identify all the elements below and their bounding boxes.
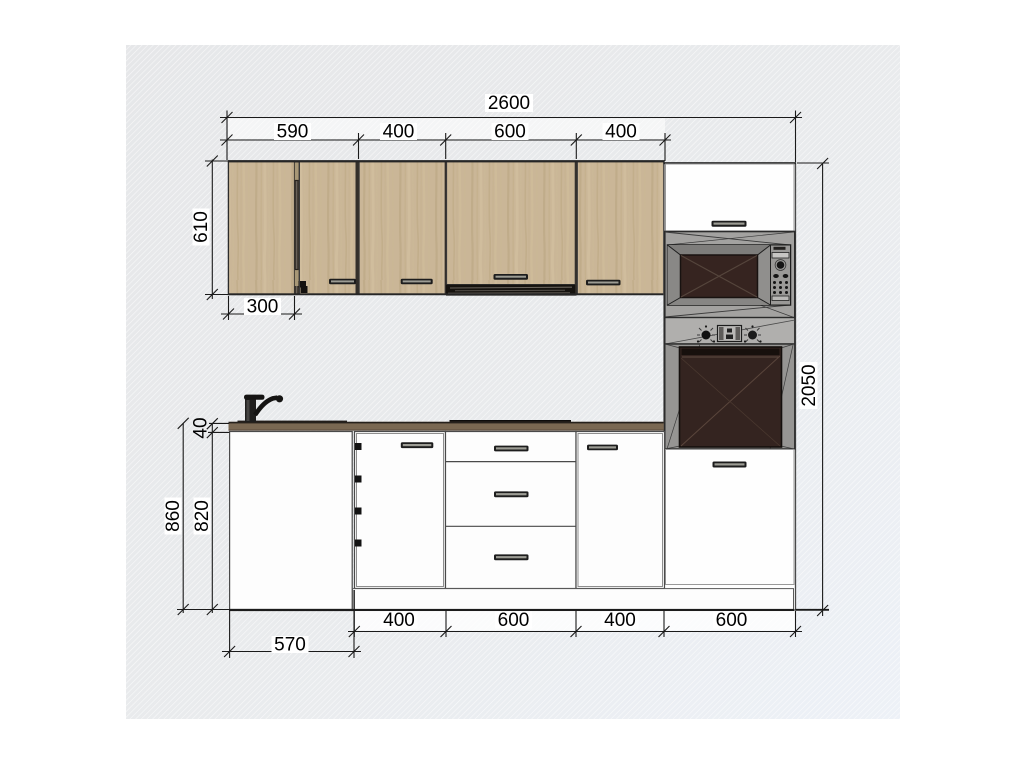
svg-text:600: 600 (498, 610, 530, 631)
svg-text:40: 40 (191, 417, 212, 438)
svg-text:600: 600 (494, 122, 526, 143)
svg-text:820: 820 (192, 500, 213, 532)
svg-text:400: 400 (383, 610, 415, 631)
svg-text:610: 610 (191, 211, 212, 243)
svg-text:400: 400 (383, 122, 415, 143)
svg-text:570: 570 (274, 635, 306, 656)
svg-text:600: 600 (716, 610, 748, 631)
svg-text:2050: 2050 (799, 364, 820, 406)
svg-text:400: 400 (604, 610, 636, 631)
svg-text:2600: 2600 (488, 93, 530, 114)
svg-text:300: 300 (247, 297, 279, 318)
svg-text:860: 860 (163, 500, 184, 532)
svg-text:590: 590 (277, 122, 309, 143)
svg-text:400: 400 (605, 122, 637, 143)
